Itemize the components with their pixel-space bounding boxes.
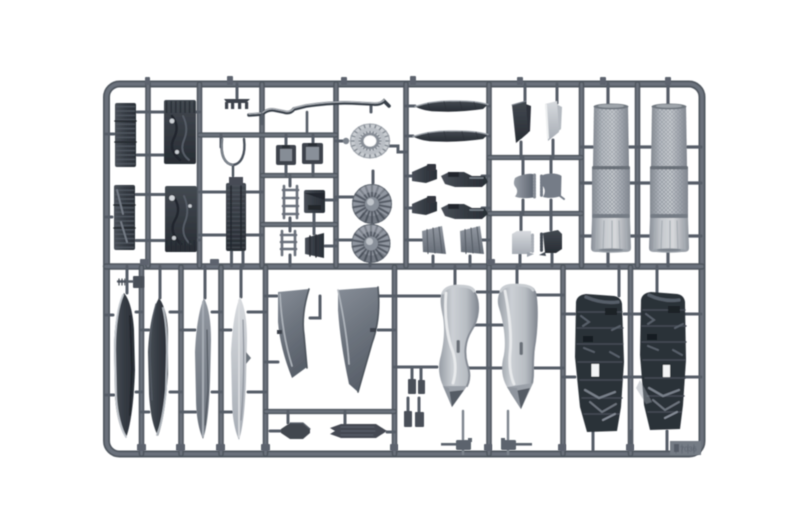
svg-text:7036: 7036 — [680, 445, 697, 454]
